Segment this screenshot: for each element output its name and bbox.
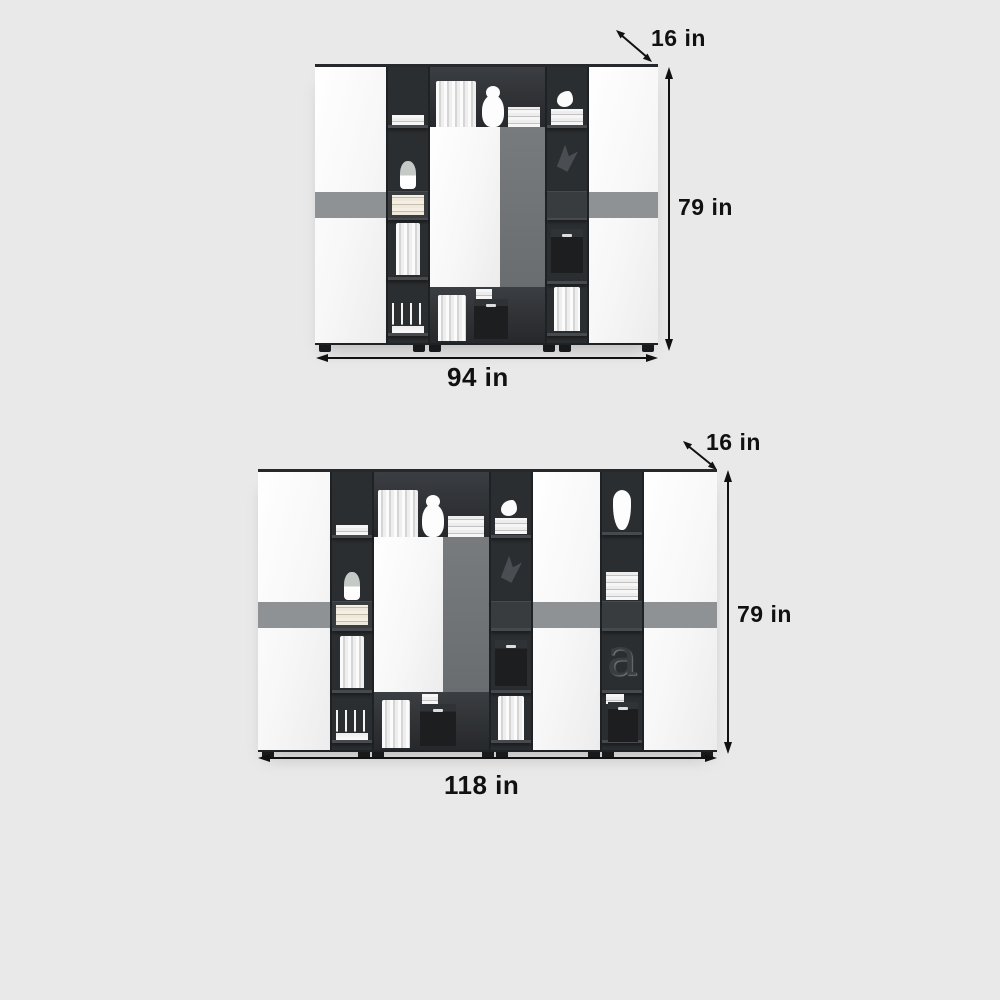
books-icon: [382, 700, 410, 748]
books-icon: [495, 518, 527, 534]
bookcase-illustration: [315, 65, 658, 345]
door-panel: [430, 127, 500, 287]
bird-figurine-icon: [501, 500, 517, 516]
shelf-divider: [547, 281, 587, 284]
vase-icon: [613, 490, 631, 530]
shelf-divider: [332, 690, 372, 693]
open-shelf: [374, 692, 489, 750]
sculpture-icon: [555, 143, 579, 173]
cabinet-top-edge: [258, 469, 717, 472]
shelf-divider: [547, 333, 587, 336]
door-panel-gray: [443, 537, 489, 692]
width-label: 94 in: [447, 362, 509, 393]
shelf-divider: [388, 125, 428, 128]
books-icon: [551, 109, 583, 125]
accent-band: [533, 602, 600, 628]
books-icon: [392, 195, 424, 215]
accent-band: [315, 192, 386, 218]
storage-box-icon: [495, 640, 527, 686]
open-shelf: [374, 470, 489, 537]
books-icon: [422, 694, 438, 704]
bookcase-illustration: a: [258, 470, 717, 752]
shelf-column: [547, 65, 587, 343]
candle-holders-icon: [336, 710, 368, 740]
height-dimension-arrow: [661, 67, 677, 351]
accent-band: [258, 602, 330, 628]
accent-band: [644, 602, 717, 628]
books-icon: [438, 295, 466, 341]
bird-figurine-icon: [557, 91, 573, 107]
plant-icon: [400, 161, 416, 189]
height-dimension-arrow: [720, 470, 736, 754]
books-icon: [336, 605, 368, 625]
teddy-bear-icon: [482, 95, 504, 127]
depth-dimension-arrow: [612, 26, 656, 66]
cabinet-top-edge: [315, 64, 658, 67]
shelf-divider: [332, 535, 372, 538]
height-label: 79 in: [737, 601, 792, 628]
shelf-divider: [491, 628, 531, 631]
shelf-divider: [332, 740, 372, 743]
accent-band-dark: [602, 602, 642, 628]
depth-label: 16 in: [651, 25, 706, 52]
plant-icon: [344, 572, 360, 600]
books-icon: [340, 636, 364, 688]
accent-band-dark: [547, 192, 587, 218]
open-shelf: [430, 287, 545, 343]
books-icon: [498, 696, 524, 740]
books-icon: [508, 107, 540, 127]
storage-box-icon: [474, 299, 508, 339]
storage-box-icon: [608, 702, 638, 742]
shelf-column: [491, 470, 531, 750]
books-icon: [336, 525, 368, 535]
shelf-divider: [388, 333, 428, 336]
shelf-divider: [332, 628, 372, 631]
center-section: [430, 65, 545, 343]
shelf-divider: [388, 277, 428, 280]
books-icon: [476, 289, 492, 299]
sculpture-icon: [499, 554, 523, 584]
width-dimension-arrow: [258, 750, 717, 766]
books-icon: [392, 115, 424, 125]
candle-holders-icon: [392, 303, 424, 333]
shelf-column: a: [602, 470, 642, 750]
door-panel-gray: [500, 127, 545, 287]
teddy-bear-icon: [422, 504, 444, 537]
accent-band: [589, 192, 658, 218]
shelf-column: [332, 470, 372, 750]
shelf-divider: [547, 125, 587, 128]
shelf-divider: [602, 690, 642, 693]
books-icon: [606, 572, 638, 600]
shelf-column: [388, 65, 428, 343]
shelf-divider: [602, 532, 642, 535]
books-icon: [378, 490, 418, 537]
width-label: 118 in: [444, 770, 519, 801]
shelf-divider: [491, 740, 531, 743]
shelf-divider: [491, 535, 531, 538]
books-icon: [554, 287, 580, 331]
books-icon: [448, 516, 484, 537]
books-icon: [396, 223, 420, 275]
books-icon: [436, 81, 476, 127]
door-panel: [374, 537, 443, 692]
storage-box-icon: [551, 229, 583, 273]
height-label: 79 in: [678, 194, 733, 221]
open-shelf: [430, 65, 545, 127]
depth-label: 16 in: [706, 429, 761, 456]
center-section: [374, 470, 489, 750]
storage-box-icon: [420, 704, 456, 746]
accent-band-dark: [491, 602, 531, 628]
letter-a-decor: a: [602, 628, 642, 688]
shelf-divider: [491, 690, 531, 693]
